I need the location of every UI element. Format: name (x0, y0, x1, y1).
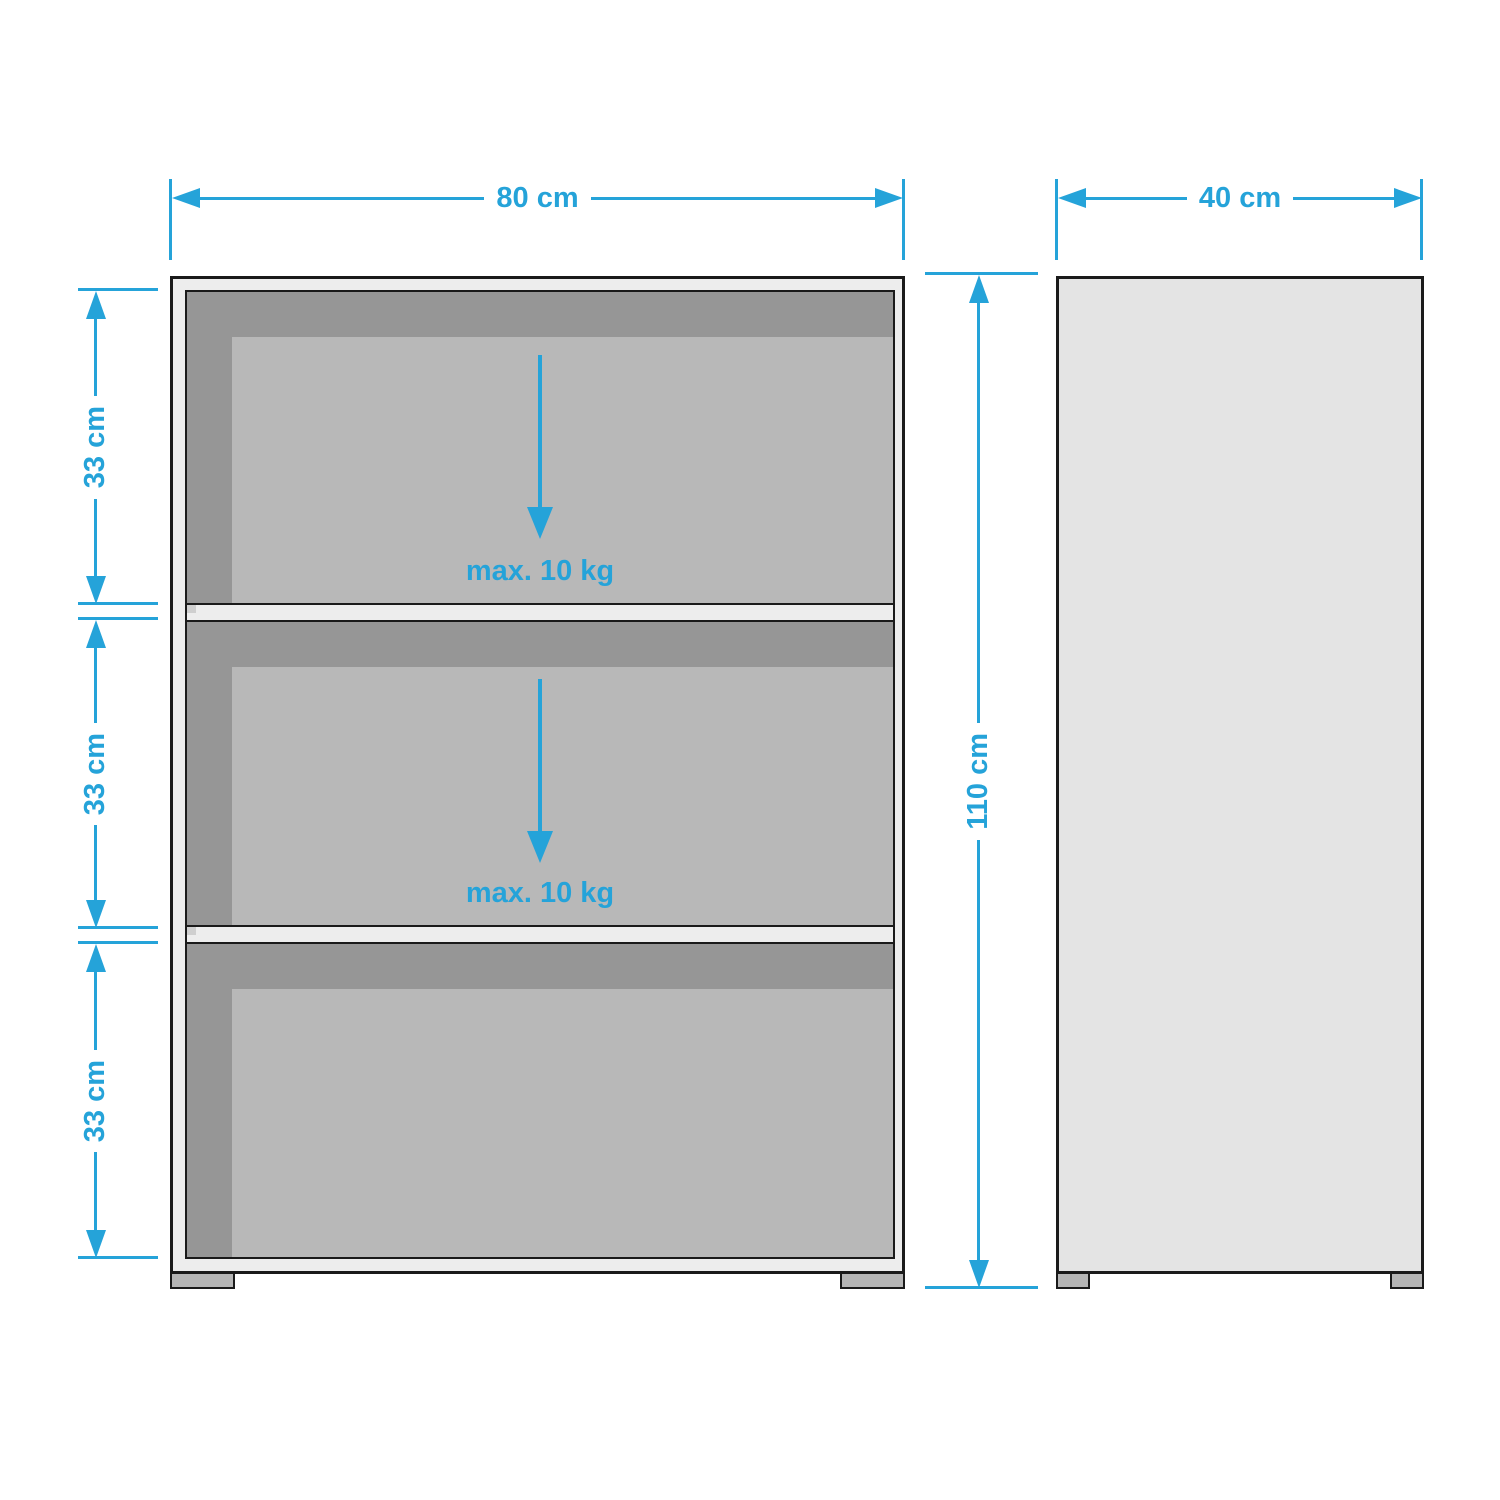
compartment-1: max. 10 kg (187, 292, 893, 603)
front-right-foot (840, 1272, 905, 1289)
arrow-right-icon (1394, 188, 1422, 208)
front-left-foot (170, 1272, 235, 1289)
arrow-right-icon (875, 188, 903, 208)
load-down-arrow-icon (527, 679, 553, 863)
width-dimension: 80 cm (172, 182, 903, 214)
shelf-1-edge (187, 605, 196, 613)
load-down-arrow-icon (527, 355, 553, 539)
compartment-height-label: 33 cm (79, 406, 112, 488)
arrow-down-icon (86, 1230, 106, 1258)
front-view: max. 10 kg max. 10 kg (170, 276, 905, 1274)
shelf-1 (187, 603, 893, 622)
arrow-left-icon (1058, 188, 1086, 208)
arrow-up-icon (969, 275, 989, 303)
compartment-height-dimension-1: 33 cm (79, 291, 112, 604)
arrow-left-icon (172, 188, 200, 208)
height-dimension: 110 cm (962, 275, 995, 1288)
arrow-down-icon (86, 900, 106, 928)
side-left-foot (1056, 1272, 1090, 1289)
compartment-height-label: 33 cm (79, 1060, 112, 1142)
side-view (1056, 276, 1424, 1274)
compartment-height-dimension-2: 33 cm (79, 620, 112, 928)
height-dimension-label: 110 cm (962, 733, 995, 830)
compartment-2: max. 10 kg (187, 622, 893, 925)
shelf-2-edge (187, 927, 196, 935)
shelf-2 (187, 925, 893, 944)
compartment-height-dimension-3: 33 cm (79, 944, 112, 1258)
width-dimension-label: 80 cm (496, 182, 578, 215)
arrow-up-icon (86, 291, 106, 319)
compartment-3-back-panel (232, 989, 893, 1257)
side-right-foot (1390, 1272, 1424, 1289)
front-view-interior: max. 10 kg max. 10 kg (185, 290, 895, 1259)
arrow-down-icon (969, 1260, 989, 1288)
shelf-load-label: max. 10 kg (187, 555, 893, 588)
arrow-down-icon (86, 576, 106, 604)
arrow-up-icon (86, 620, 106, 648)
shelf-load-label: max. 10 kg (187, 877, 893, 910)
depth-dimension-label: 40 cm (1199, 182, 1281, 215)
arrow-up-icon (86, 944, 106, 972)
compartment-3 (187, 944, 893, 1257)
dimension-diagram: max. 10 kg max. 10 kg (0, 0, 1500, 1500)
depth-dimension: 40 cm (1058, 182, 1422, 214)
compartment-height-label: 33 cm (79, 733, 112, 815)
